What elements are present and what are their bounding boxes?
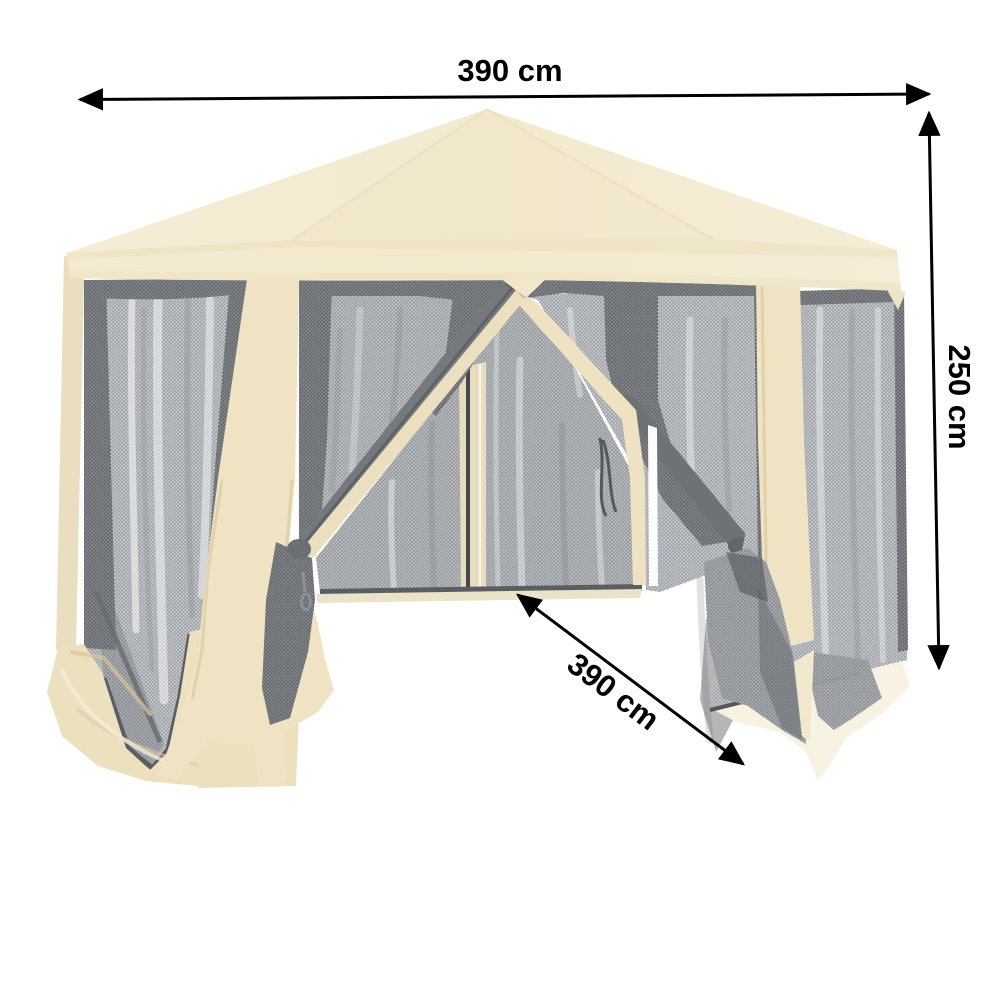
- svg-text:250 cm: 250 cm: [942, 344, 977, 449]
- svg-text:390 cm: 390 cm: [457, 53, 562, 88]
